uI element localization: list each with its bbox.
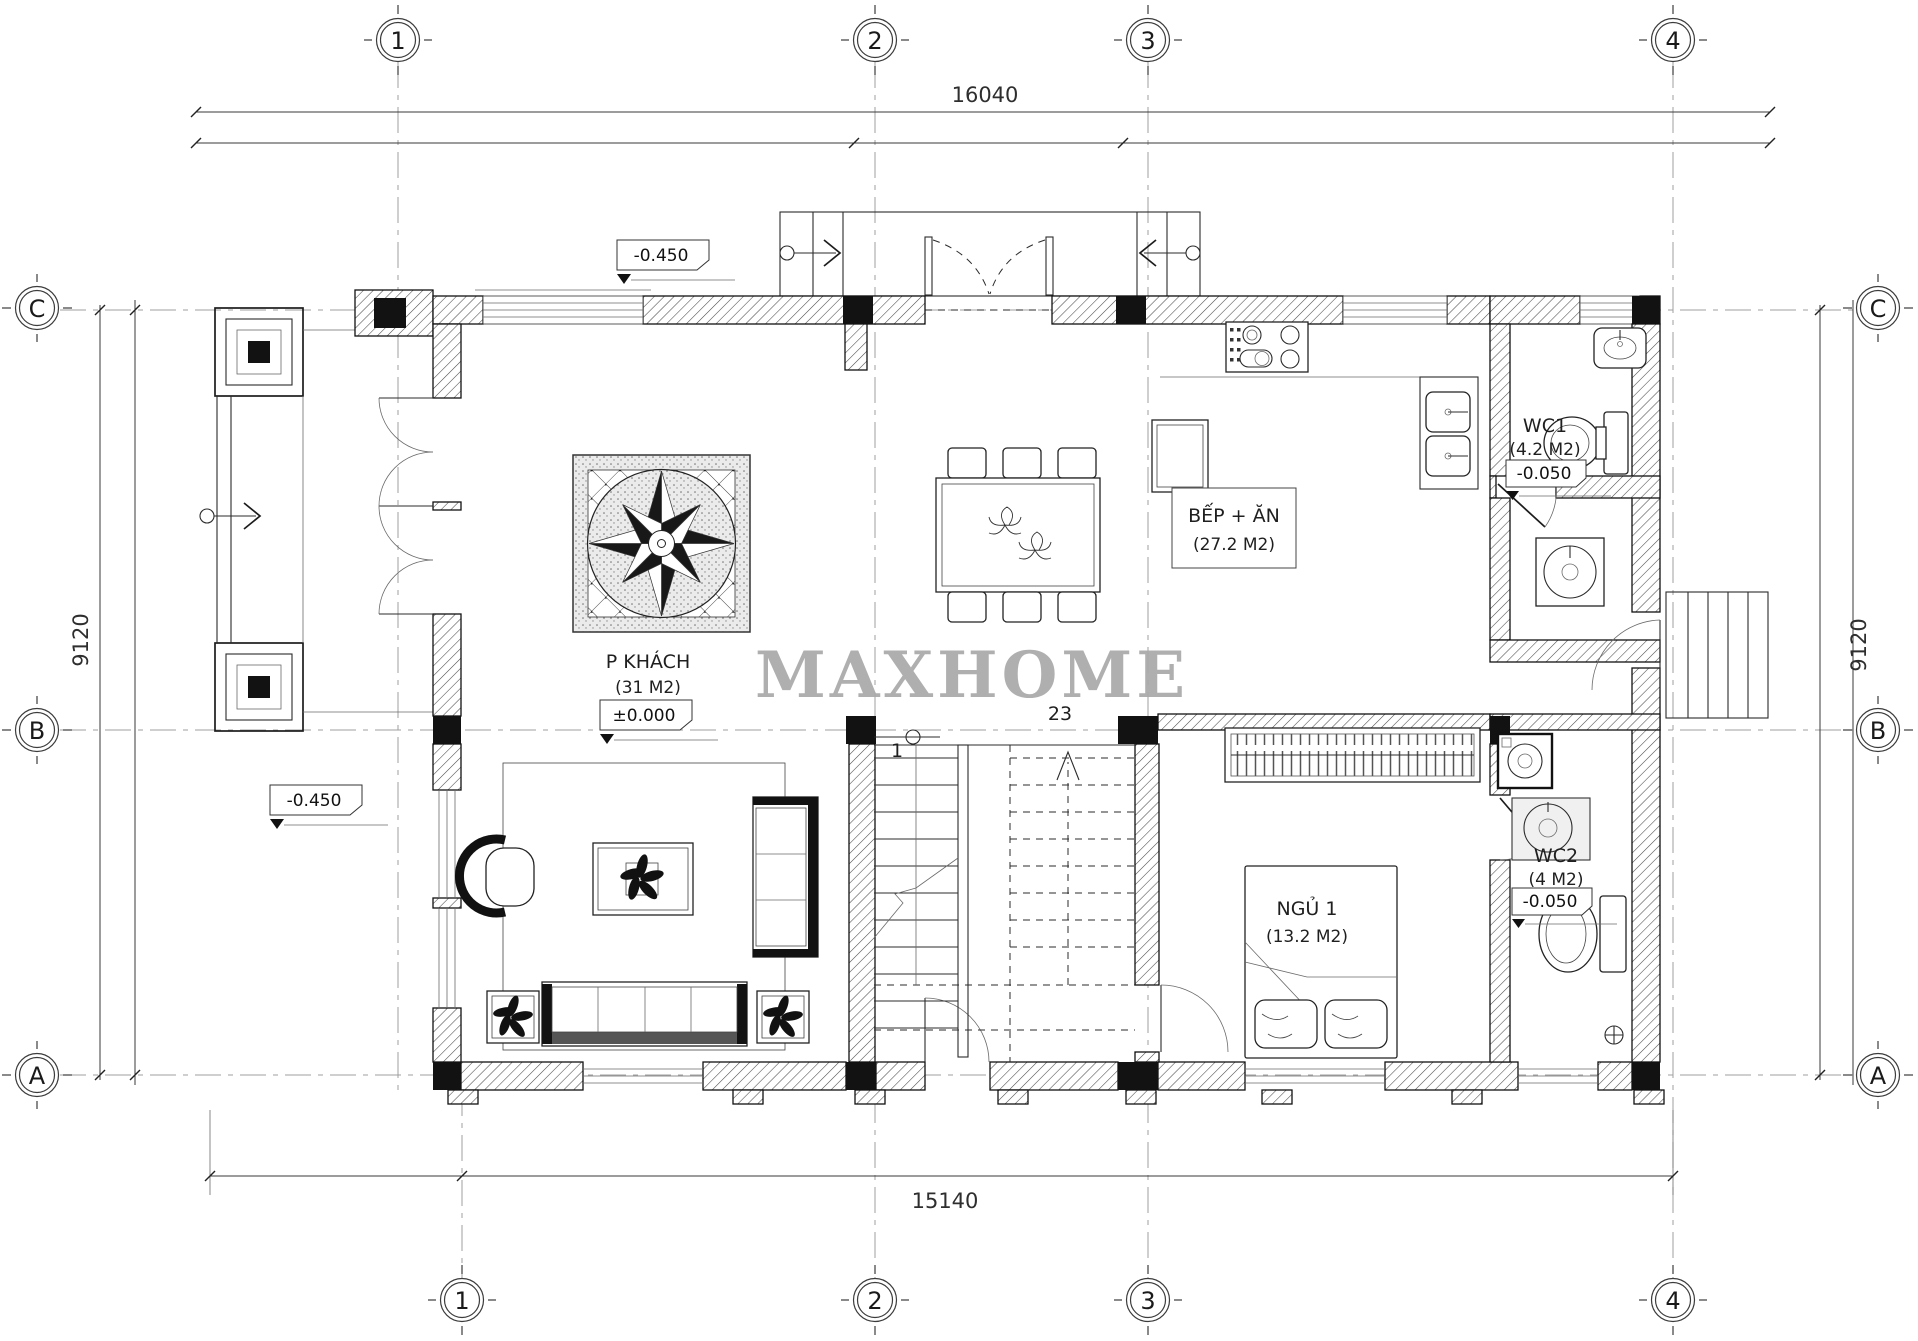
window-top-wc1 <box>1580 296 1640 324</box>
svg-text:1: 1 <box>390 27 405 55</box>
dining-set <box>936 448 1100 622</box>
wc1-vanity <box>1536 538 1604 606</box>
window-bottom-1 <box>583 1069 703 1083</box>
svg-text:±0.000: ±0.000 <box>613 706 676 726</box>
window-left-1 <box>439 790 455 898</box>
svg-text:4: 4 <box>1665 27 1680 55</box>
porch-column-bottom <box>215 643 303 731</box>
dining-chair <box>1003 592 1041 622</box>
coffee-table <box>593 843 693 915</box>
floor-plan-drawing: 16040 15140 9120 9120 1 2 3 4 1 2 3 4 C … <box>0 0 1918 1341</box>
svg-text:3: 3 <box>1140 27 1155 55</box>
svg-text:(4.2 M2): (4.2 M2) <box>1509 440 1580 460</box>
wc2-tap <box>1605 1026 1623 1044</box>
window-top-living <box>475 290 651 324</box>
svg-text:4: 4 <box>1665 1287 1680 1315</box>
axis-bubble-bottom-3: 3 <box>1114 1265 1182 1335</box>
svg-text:2: 2 <box>867 27 882 55</box>
dim-top-label: 16040 <box>952 83 1019 107</box>
porch-direction-arrow <box>200 503 260 529</box>
dining-chair <box>1058 448 1096 478</box>
dining-table <box>936 478 1100 592</box>
room-label-kitchen: BẾP + ĂN (27.2 M2) <box>1172 488 1296 568</box>
window-bottom-2 <box>1245 1069 1385 1083</box>
axis-bubble-left-C: C <box>2 274 72 342</box>
dim-bottom-label: 15140 <box>912 1189 979 1213</box>
dining-chair <box>1058 592 1096 622</box>
window-left-2 <box>439 908 455 1008</box>
entry-direction-arrow-right <box>1140 240 1200 266</box>
sitting-area <box>459 763 818 1050</box>
wc2-washer <box>1498 734 1552 788</box>
plant-pot-left <box>487 991 539 1043</box>
pillow <box>1325 1000 1387 1048</box>
window-top-kitchen <box>1343 296 1447 324</box>
svg-text:WC2: WC2 <box>1534 845 1578 867</box>
porch-railing <box>217 396 303 643</box>
stair-start-number: 1 <box>891 740 903 762</box>
door-bedroom <box>1161 985 1228 1052</box>
armchair <box>459 839 534 913</box>
svg-text:P KHÁCH: P KHÁCH <box>606 650 690 673</box>
foundation-tabs <box>448 1090 1664 1104</box>
svg-text:2: 2 <box>867 1287 882 1315</box>
dimension-left: 9120 <box>69 300 140 1085</box>
watermark-logo: MAXHOME <box>755 638 1189 713</box>
wc1-basin <box>1594 328 1646 368</box>
dimension-top: 16040 <box>191 83 1775 148</box>
dim-left-label: 9120 <box>69 613 93 666</box>
main-stairs: 1 23 <box>874 703 1135 1062</box>
svg-text:A: A <box>29 1062 46 1090</box>
axis-bubble-bottom-2: 2 <box>841 1265 909 1335</box>
entry-steps <box>780 212 1200 310</box>
axis-bubble-bottom-4: 4 <box>1639 1265 1707 1335</box>
sofa-side <box>753 797 818 957</box>
svg-text:BẾP + ĂN: BẾP + ĂN <box>1188 502 1280 527</box>
level-flag-entry: -0.450 <box>617 240 735 284</box>
room-label-wc2: WC2 (4 M2) <box>1529 845 1584 890</box>
bed <box>1245 866 1397 1058</box>
french-doors-living-porch <box>379 398 433 614</box>
svg-text:B: B <box>29 717 45 745</box>
svg-text:B: B <box>1870 717 1886 745</box>
dim-right-label: 9120 <box>1847 618 1871 671</box>
pillow <box>1255 1000 1317 1048</box>
stair-treads-upper <box>874 745 1135 1062</box>
kitchen-fridge <box>1152 420 1208 492</box>
dimension-bottom: 15140 <box>205 1110 1678 1213</box>
compass-floor-tile <box>573 455 750 632</box>
svg-text:(27.2 M2): (27.2 M2) <box>1193 535 1275 555</box>
kitchen-sink <box>1426 392 1470 476</box>
svg-text:-0.050: -0.050 <box>1517 464 1572 484</box>
svg-text:-0.450: -0.450 <box>634 246 689 266</box>
svg-text:C: C <box>1870 295 1887 323</box>
side-stair <box>1666 592 1768 718</box>
room-label-living: P KHÁCH (31 M2) <box>606 650 690 698</box>
dining-chair <box>948 448 986 478</box>
level-flag-living: ±0.000 <box>600 700 718 744</box>
level-flag-porch: -0.450 <box>270 785 388 829</box>
bedroom <box>1225 728 1480 1058</box>
svg-text:-0.450: -0.450 <box>287 791 342 811</box>
window-bottom-3 <box>1518 1069 1598 1083</box>
kitchen <box>1152 322 1478 492</box>
svg-text:A: A <box>1870 1062 1887 1090</box>
svg-text:NGỦ 1: NGỦ 1 <box>1277 895 1338 920</box>
svg-text:1: 1 <box>454 1287 469 1315</box>
plant-pot-right <box>757 991 809 1043</box>
svg-text:(4 M2): (4 M2) <box>1529 870 1584 890</box>
sofa-main <box>542 982 747 1046</box>
svg-text:WC1: WC1 <box>1523 415 1567 437</box>
dining-chair <box>1003 448 1041 478</box>
svg-text:3: 3 <box>1140 1287 1155 1315</box>
dining-chair <box>948 592 986 622</box>
kitchen-stove <box>1226 322 1308 372</box>
svg-text:C: C <box>29 295 46 323</box>
svg-text:-0.050: -0.050 <box>1523 892 1578 912</box>
floor-plan-page: 16040 15140 9120 9120 1 2 3 4 1 2 3 4 C … <box>0 0 1918 1341</box>
entry-double-door <box>925 237 1053 310</box>
dimension-right: 9120 <box>1815 300 1871 1085</box>
porch-column-top <box>215 308 303 396</box>
entry-direction-arrow-left <box>780 240 840 266</box>
svg-text:(31 M2): (31 M2) <box>615 678 681 698</box>
wardrobe <box>1225 728 1480 782</box>
svg-text:(13.2 M2): (13.2 M2) <box>1266 927 1348 947</box>
